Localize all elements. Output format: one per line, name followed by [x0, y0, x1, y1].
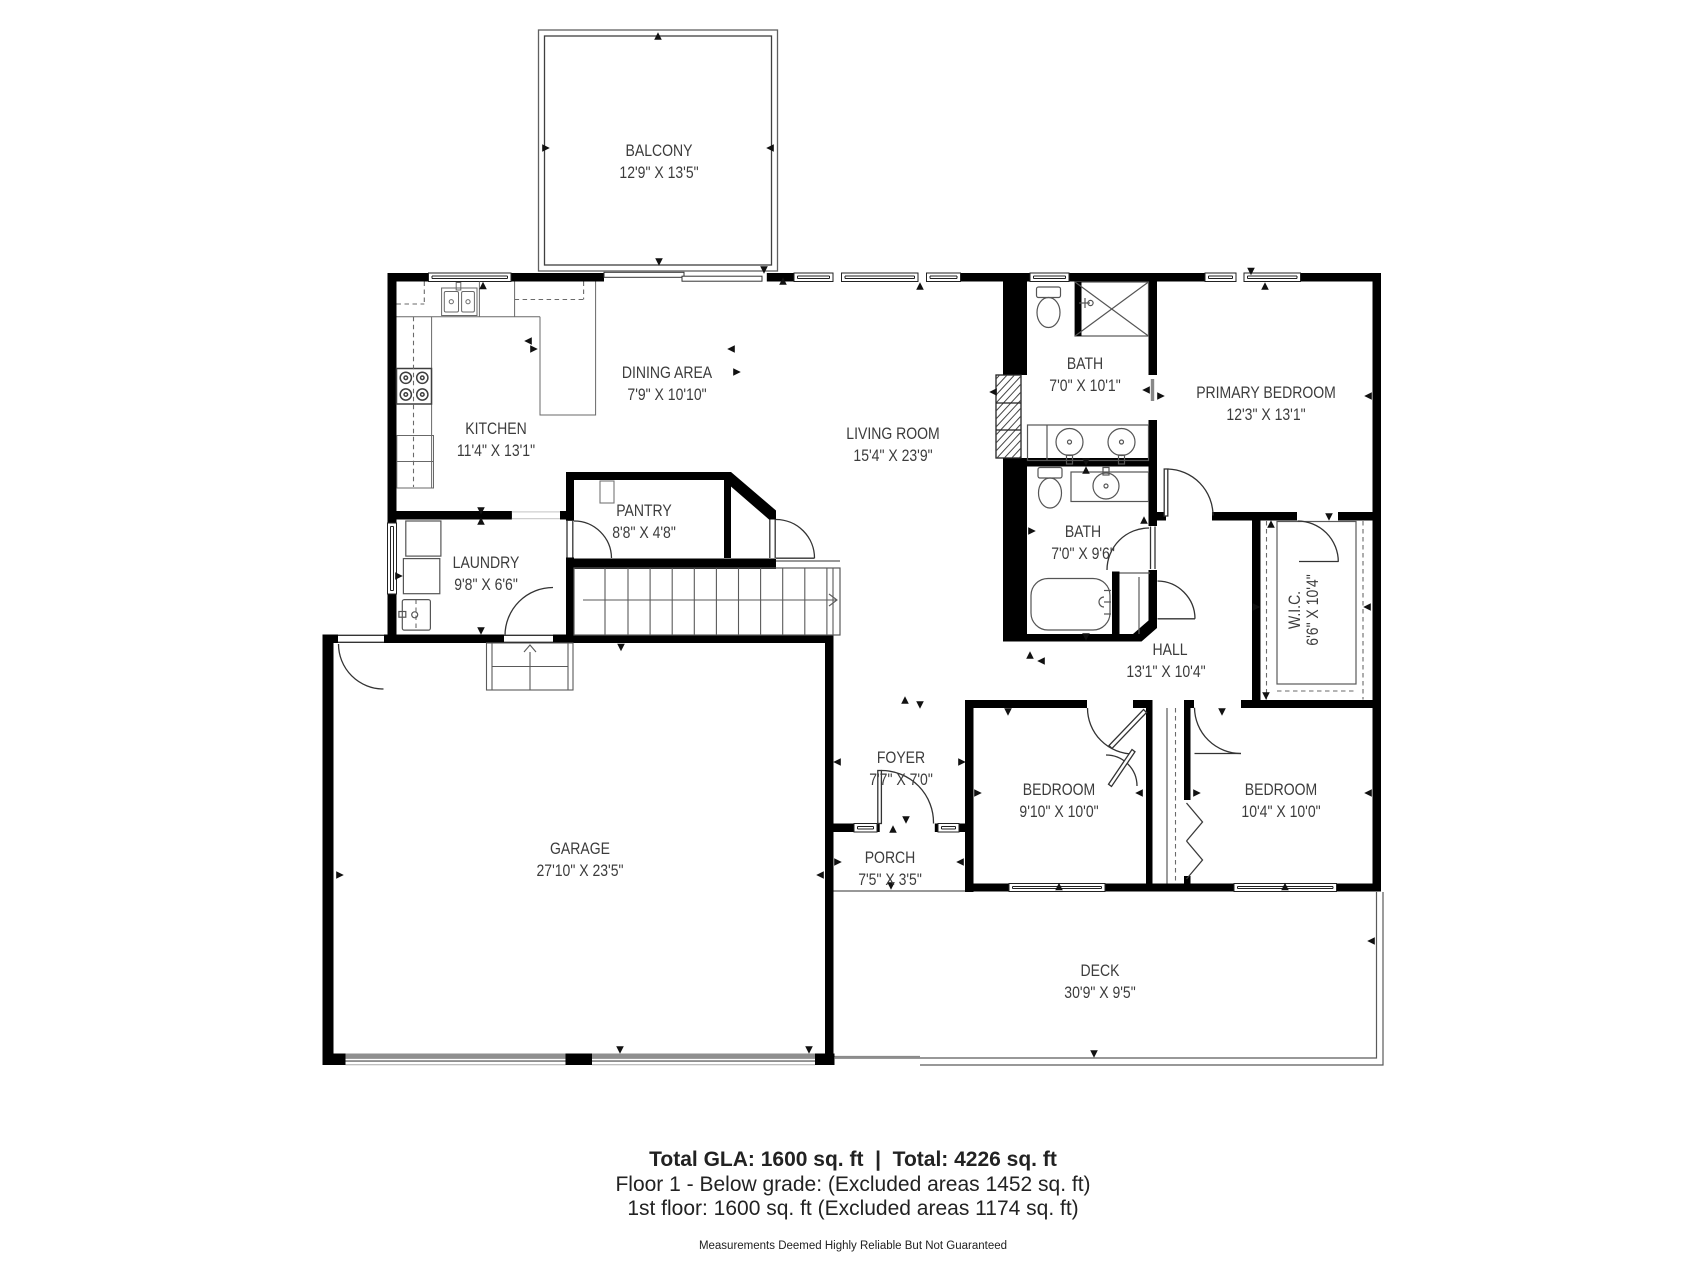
svg-text:9'8" X 6'6": 9'8" X 6'6"	[454, 576, 518, 594]
svg-text:PORCH: PORCH	[865, 849, 916, 867]
svg-text:13'1" X 10'4": 13'1" X 10'4"	[1126, 663, 1205, 681]
svg-text:8'8" X 4'8": 8'8" X 4'8"	[612, 524, 676, 542]
svg-text:FOYER: FOYER	[877, 749, 925, 767]
svg-text:DINING AREA: DINING AREA	[622, 364, 713, 382]
svg-text:BEDROOM: BEDROOM	[1023, 781, 1095, 799]
svg-text:PRIMARY BEDROOM: PRIMARY BEDROOM	[1196, 384, 1336, 402]
svg-text:27'10" X 23'5": 27'10" X 23'5"	[537, 862, 624, 880]
svg-text:LAUNDRY: LAUNDRY	[453, 554, 520, 572]
svg-text:BATH: BATH	[1067, 355, 1103, 373]
svg-text:11'4" X 13'1": 11'4" X 13'1"	[457, 442, 535, 460]
svg-text:7'9" X 10'10": 7'9" X 10'10"	[627, 386, 706, 404]
svg-text:12'3" X 13'1": 12'3" X 13'1"	[1226, 406, 1305, 424]
svg-text:BALCONY: BALCONY	[626, 142, 693, 160]
svg-text:W.I.C.: W.I.C.	[1286, 591, 1304, 629]
svg-text:LIVING ROOM: LIVING ROOM	[846, 425, 939, 443]
svg-text:30'9" X 9'5": 30'9" X 9'5"	[1064, 984, 1135, 1002]
svg-text:9'10" X 10'0": 9'10" X 10'0"	[1019, 803, 1098, 821]
svg-text:PANTRY: PANTRY	[616, 502, 672, 520]
svg-text:15'4" X 23'9": 15'4" X 23'9"	[853, 447, 932, 465]
svg-text:12'9" X 13'5": 12'9" X 13'5"	[619, 164, 698, 182]
svg-text:BEDROOM: BEDROOM	[1245, 781, 1317, 799]
svg-text:7'0" X 10'1": 7'0" X 10'1"	[1049, 377, 1120, 395]
svg-text:DECK: DECK	[1081, 962, 1121, 980]
svg-text:10'4" X 10'0": 10'4" X 10'0"	[1241, 803, 1320, 821]
svg-text:7'0" X 9'6": 7'0" X 9'6"	[1051, 545, 1115, 563]
svg-text:HALL: HALL	[1152, 641, 1187, 659]
svg-text:KITCHEN: KITCHEN	[465, 420, 526, 438]
svg-text:BATH: BATH	[1065, 523, 1101, 541]
svg-text:7'5" X 3'5": 7'5" X 3'5"	[858, 871, 922, 889]
svg-text:GARAGE: GARAGE	[550, 840, 610, 858]
svg-text:7'7" X 7'0": 7'7" X 7'0"	[869, 771, 933, 789]
svg-text:6'6" X 10'4": 6'6" X 10'4"	[1304, 574, 1322, 645]
